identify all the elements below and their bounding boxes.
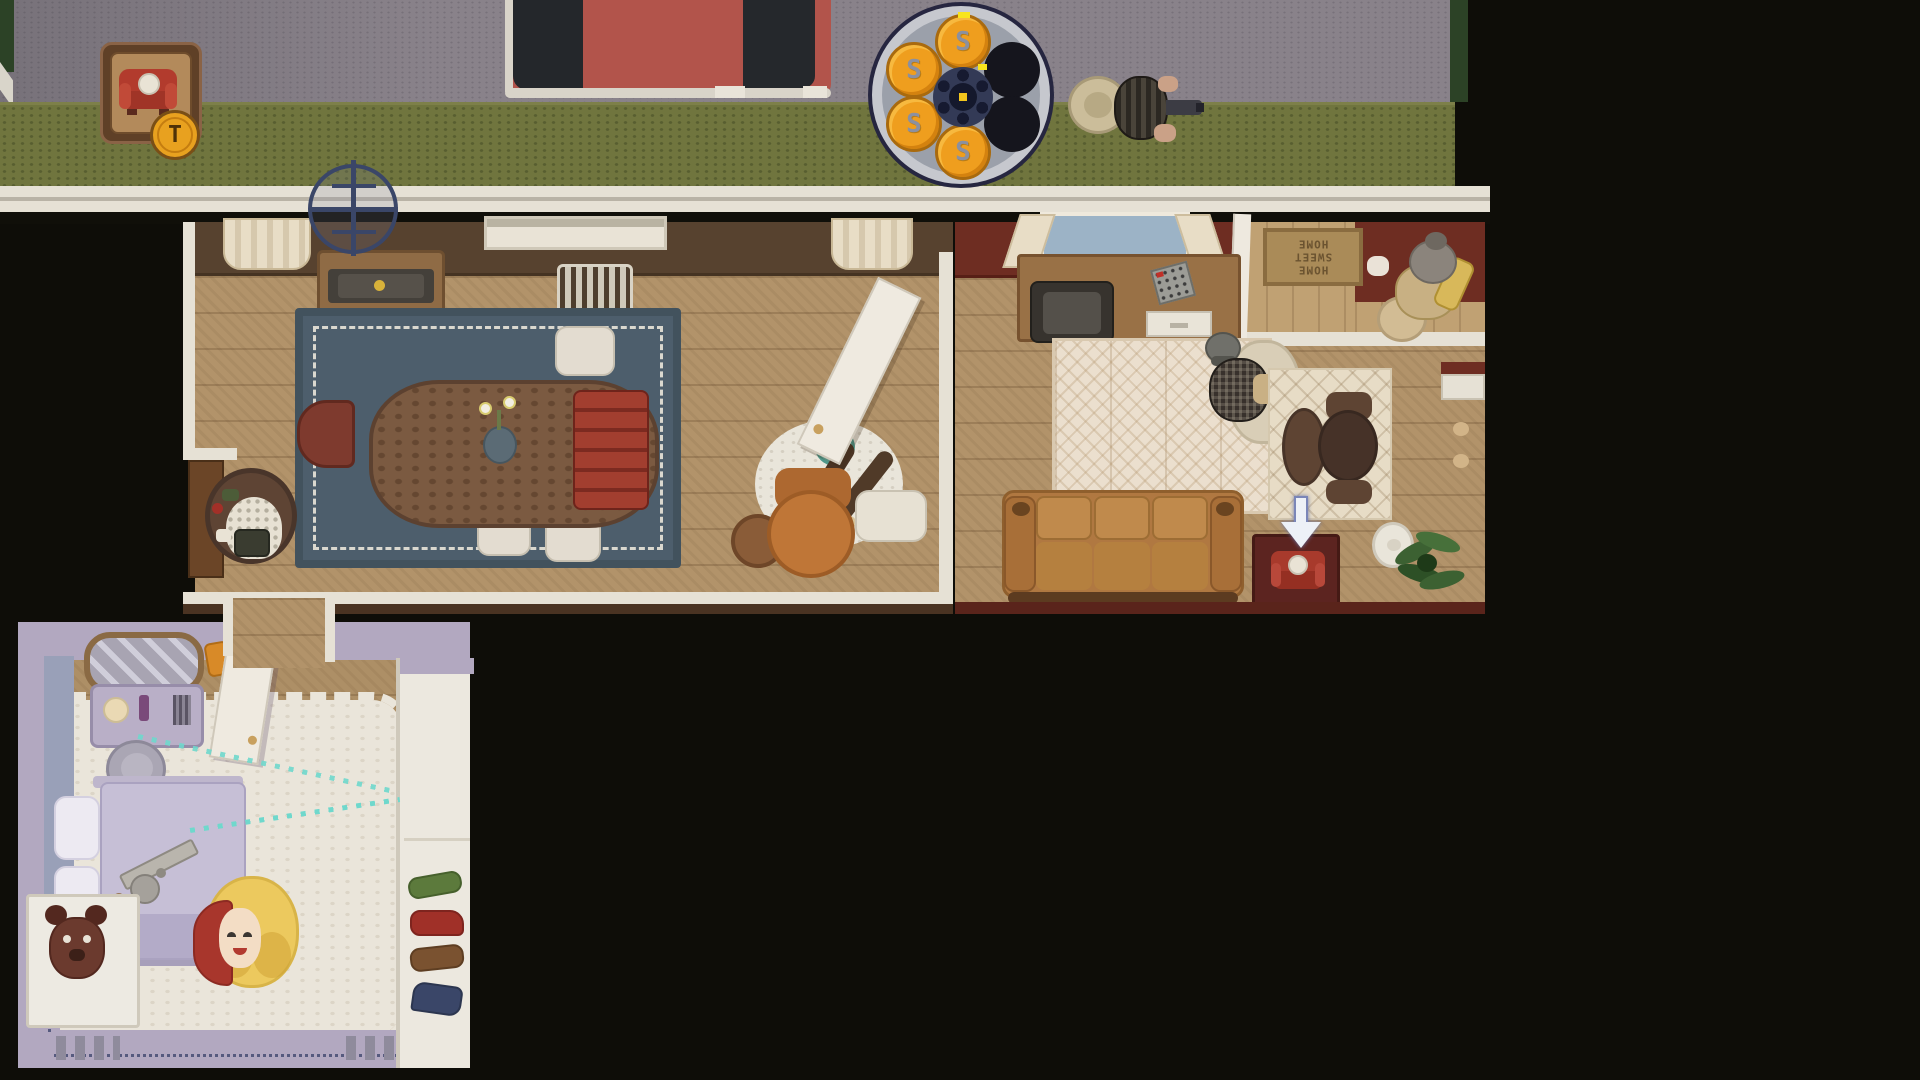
turntable <box>328 269 434 303</box>
entry-npc[interactable] <box>1367 224 1485 336</box>
bullet-bottom: S <box>935 124 991 180</box>
shoe-navy-heel[interactable] <box>410 981 464 1018</box>
hedge-right <box>1450 0 1468 102</box>
dining-right-wall <box>939 252 953 592</box>
arrow-head <box>1281 522 1321 548</box>
player-hand-top <box>1158 76 1178 92</box>
parked-car <box>505 0 831 100</box>
empty-chamber-2 <box>984 96 1040 152</box>
hub-gold-dot <box>959 93 967 101</box>
hallway-wall-left <box>223 596 233 656</box>
white-side-table <box>855 490 927 542</box>
dining-left-wall <box>183 222 195 454</box>
doormat: HOME SWEET HOME <box>1263 228 1363 286</box>
houseplant <box>1387 528 1467 604</box>
npc-smoke-puff <box>1367 256 1389 276</box>
couch-seat-cushion-3 <box>1152 542 1208 590</box>
revolver-cylinder-hud: S S S S <box>868 2 1054 188</box>
player-hat-top <box>1084 92 1112 118</box>
key-label: T <box>153 113 197 157</box>
curtain-right <box>831 218 913 270</box>
car-bumper <box>505 88 831 98</box>
teddy-bear-icon <box>45 905 113 1001</box>
shoe-green[interactable] <box>407 869 464 900</box>
shelf-line-1 <box>404 838 470 841</box>
empty-chamber-1 <box>984 42 1040 98</box>
bullet-glint-2 <box>978 64 987 70</box>
door-knob <box>812 422 825 435</box>
bear-head <box>49 917 105 979</box>
mini-couch-item[interactable] <box>1271 551 1325 597</box>
curtain-left <box>223 218 311 270</box>
mouth <box>233 948 247 955</box>
daisy-1 <box>479 402 492 415</box>
car-light-right <box>803 86 827 98</box>
toybox <box>26 894 140 1028</box>
flower-vase <box>483 426 517 464</box>
bullet-glint-1 <box>958 12 970 18</box>
tv-antenna-icon <box>308 164 398 254</box>
woman-face <box>219 908 261 968</box>
couch-back-cushion-3 <box>1152 496 1208 540</box>
flower-stem <box>497 410 501 430</box>
granny-dark-item <box>234 529 270 557</box>
vanity-plate <box>103 697 129 723</box>
player-character[interactable] <box>1062 58 1202 154</box>
bear-eye-left <box>63 935 71 943</box>
bedroom-door-knob <box>247 735 257 745</box>
granny-armchair[interactable] <box>205 468 297 564</box>
orange-armchair-group <box>731 468 863 596</box>
player-gun <box>1166 100 1202 115</box>
right-ledge <box>1441 374 1485 400</box>
daisy-2 <box>503 396 516 409</box>
game-viewport[interactable]: HOME SWEET HOME <box>0 0 1920 1080</box>
car-windshield <box>513 0 583 90</box>
eye-left <box>227 932 236 937</box>
plant-pot <box>1417 554 1437 572</box>
couch-seat-cushion-2 <box>1094 542 1150 590</box>
couch-back-cushion-2 <box>1094 496 1150 540</box>
armchair-round-seat <box>1318 410 1378 482</box>
brown-armchair <box>1316 392 1380 504</box>
shoe-red[interactable] <box>410 910 464 936</box>
dining-room <box>183 222 953 614</box>
antenna-spoke-h <box>310 207 398 212</box>
couch-icon-leg-l <box>127 109 137 115</box>
dining-window <box>484 216 667 250</box>
couch-seat-cushion-1 <box>1036 542 1092 590</box>
remote-control <box>1150 261 1196 306</box>
granny-knitting-green <box>222 489 239 501</box>
tv-set[interactable] <box>1030 281 1114 343</box>
doormat-text: HOME SWEET HOME <box>1294 237 1332 277</box>
car-roof <box>743 0 815 88</box>
couch-icon-cushion <box>138 73 160 95</box>
baluster-row-1 <box>56 1036 120 1060</box>
key-coin-badge[interactable]: T <box>150 110 200 160</box>
sleeping-woman[interactable] <box>193 874 305 994</box>
comb <box>173 695 191 725</box>
hallway-floor <box>233 598 325 668</box>
wardrobe <box>396 658 470 1068</box>
window-sill-line <box>487 219 664 227</box>
orange-couch <box>1002 490 1244 606</box>
pickup-arrow-icon[interactable] <box>1281 496 1321 550</box>
hallway-wall-right <box>325 596 335 662</box>
tv-screen <box>1043 292 1101 334</box>
sidewalk-groove <box>0 197 1490 201</box>
mini-couch-arm-r <box>1315 563 1325 587</box>
antenna-bar-2 <box>332 230 376 234</box>
bear-snout <box>69 949 85 961</box>
player-hand-bottom <box>1154 124 1176 142</box>
car-outline <box>505 0 513 92</box>
living-room: HOME SWEET HOME <box>955 222 1485 614</box>
bullet-top: S <box>935 14 991 70</box>
dining-chair-left <box>297 400 355 468</box>
lipstick <box>139 695 149 721</box>
mini-couch-cushion <box>1288 555 1308 575</box>
couch-arm-dot-left <box>1012 502 1030 516</box>
remote-red-dot <box>1156 271 1164 278</box>
shoe-brown[interactable] <box>409 943 465 973</box>
living-window <box>1040 212 1190 260</box>
mini-couch-arm-l <box>1271 563 1281 587</box>
granny-cuff <box>216 529 231 542</box>
granny-knitting-red <box>212 503 223 514</box>
gun-muzzle <box>1196 103 1204 112</box>
revolver-hammer <box>156 868 166 878</box>
sidewalk-band <box>0 186 1490 212</box>
bedroom <box>18 622 470 1068</box>
couch-icon-arm-r <box>165 83 177 109</box>
wall-knob-1 <box>1453 422 1469 436</box>
grass-strip <box>0 102 1455 188</box>
bear-eye-right <box>83 935 91 943</box>
couch-back-cushion-1 <box>1036 496 1092 540</box>
cylinder-hub <box>933 67 993 127</box>
couch-arm-dot-right <box>1216 502 1234 516</box>
eye-right <box>243 932 252 937</box>
drawer-handle <box>1170 323 1188 328</box>
armchair-cushion-bottom <box>1326 480 1372 504</box>
couch-icon-arm-l <box>119 83 131 109</box>
wardrobe-top-strip <box>400 658 474 674</box>
turntable-knob <box>374 280 385 291</box>
dining-chair-top <box>555 326 615 376</box>
armchair-seat <box>767 490 855 578</box>
car-light-left <box>715 86 745 98</box>
red-slatted-chair <box>573 390 649 510</box>
bedroom-wall-top-right <box>330 622 470 660</box>
tv-cabinet <box>1017 254 1241 342</box>
hedge-left <box>0 0 14 72</box>
antenna-bar-1 <box>332 184 376 188</box>
dining-left-wall-cap <box>183 448 237 460</box>
arrow-shaft <box>1294 496 1308 524</box>
living-bottom-wall <box>955 602 1485 614</box>
wall-knob-2 <box>1453 454 1469 468</box>
npc-hair-bun <box>1425 232 1447 250</box>
